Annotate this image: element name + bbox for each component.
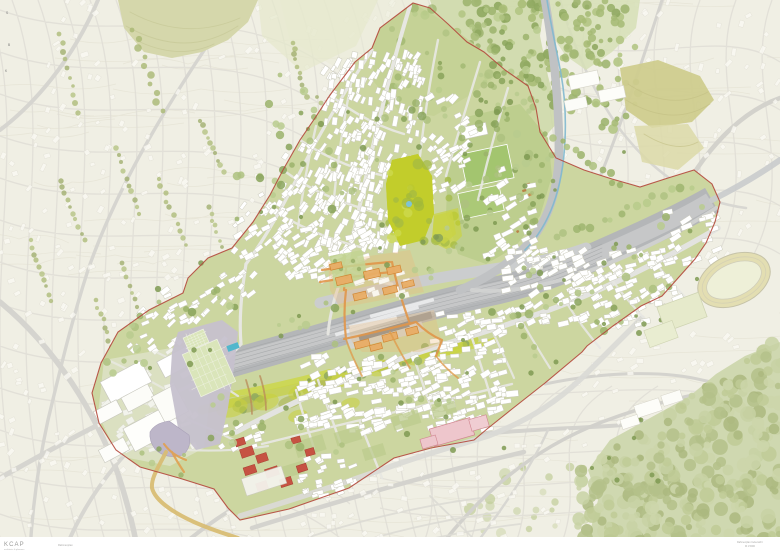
svg-text:Rahmenplan: Rahmenplan [58, 543, 73, 547]
svg-text:Rahmenplan Uebersicht: Rahmenplan Uebersicht [737, 541, 763, 544]
svg-text:B: B [8, 43, 10, 47]
svg-text:S: S [6, 11, 8, 15]
svg-text:M 1:5000: M 1:5000 [745, 545, 756, 548]
svg-text:KCAP: KCAP [4, 542, 25, 548]
svg-text:architects & planners: architects & planners [4, 548, 25, 551]
